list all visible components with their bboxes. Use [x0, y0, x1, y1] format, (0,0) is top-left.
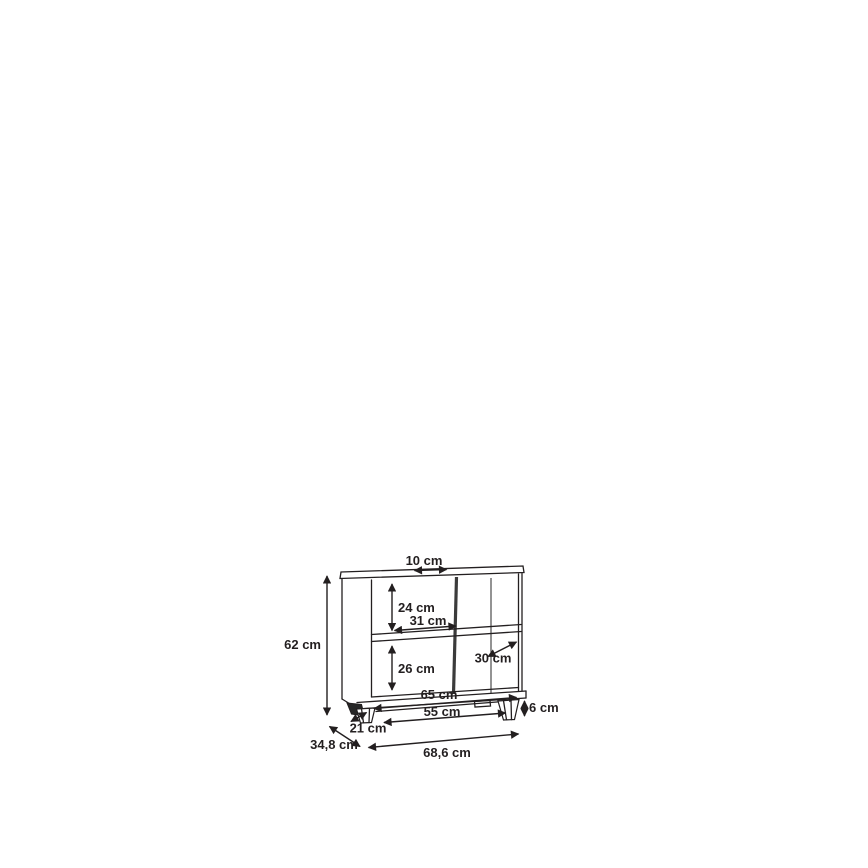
dim-height: 62 cm [284, 576, 327, 715]
dim-label-foot-height: 6 cm [529, 700, 559, 715]
dim-lower-compartment-height: 26 cm [392, 646, 435, 690]
dim-label-upper-compartment-width: 31 cm [410, 613, 447, 628]
cabinet-foot-front-right [498, 700, 519, 721]
dim-upper-compartment-width: 31 cm [395, 613, 457, 631]
dim-label-height: 62 cm [284, 637, 321, 652]
dim-label-depth: 34,8 cm [310, 737, 358, 752]
dim-label-bottom-inner-width: 65 cm [421, 687, 458, 702]
dim-label-width: 68,6 cm [423, 745, 471, 760]
dim-top-depth: 10 cm [406, 553, 447, 571]
dim-compartment-depth: 30 cm [475, 642, 517, 666]
dim-label-top-depth: 10 cm [406, 553, 443, 568]
dim-label-foot-span-width: 55 cm [424, 704, 461, 719]
dim-label-lower-compartment-height: 26 cm [398, 661, 435, 676]
dim-width: 68,6 cm [369, 734, 519, 760]
dim-label-foot-depth: 21 cm [350, 721, 387, 736]
dimension-diagram: 62 cm 10 cm 24 cm 31 cm 26 cm 30 cm 65 c… [0, 0, 868, 868]
dimension-annotations: 62 cm 10 cm 24 cm 31 cm 26 cm 30 cm 65 c… [284, 553, 559, 760]
dim-label-compartment-depth: 30 cm [475, 651, 512, 666]
dim-foot-height: 6 cm [525, 700, 559, 716]
